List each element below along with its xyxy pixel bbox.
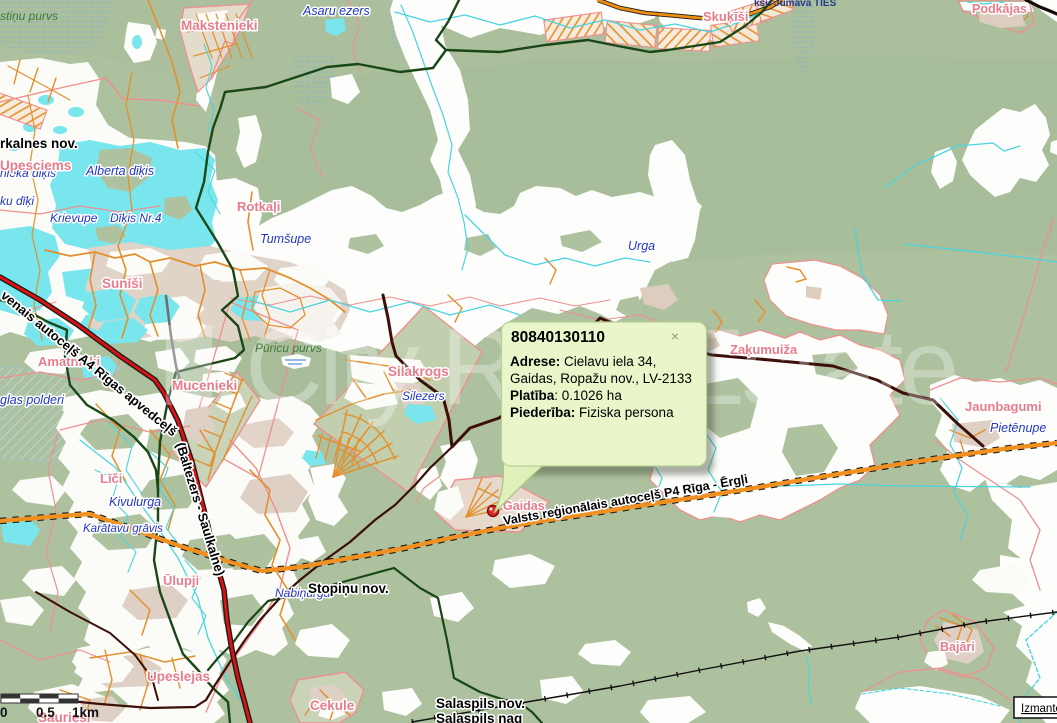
svg-text:kšu Jumava TIES: kšu Jumava TIES [754, 0, 837, 9]
svg-text:Izmantoš: Izmantoš [1021, 703, 1057, 715]
svg-text:Salaspils nov.: Salaspils nov. [436, 696, 525, 711]
svg-text:Rotkaļi: Rotkaļi [237, 199, 280, 214]
svg-text:Piederība: Fiziska persona: Piederība: Fiziska persona [510, 405, 674, 420]
svg-text:Gaidas, Ropažu nov., LV-2133: Gaidas, Ropažu nov., LV-2133 [510, 371, 692, 386]
svg-text:Alberta dīķis: Alberta dīķis [85, 164, 154, 178]
svg-text:Mucenieki: Mucenieki [172, 378, 237, 393]
svg-text:Upeslejas: Upeslejas [147, 669, 210, 684]
svg-text:Silezers: Silezers [402, 389, 445, 403]
svg-text:Sunīši: Sunīši [102, 276, 143, 291]
svg-text:80840130110: 80840130110 [511, 329, 605, 346]
svg-text:Asaru ezers: Asaru ezers [302, 4, 370, 18]
svg-text:Platība: 0.1026 ha: Platība: 0.1026 ha [510, 388, 622, 403]
svg-text:rkalnes nov.: rkalnes nov. [0, 136, 78, 151]
svg-text:Makstenieki: Makstenieki [181, 18, 258, 33]
svg-text:Pūricu purvs: Pūricu purvs [255, 341, 322, 355]
svg-text:0.5: 0.5 [36, 705, 55, 720]
svg-text:1km: 1km [72, 705, 99, 720]
svg-text:Podkājas: Podkājas [972, 2, 1027, 16]
svg-text:Karātavu grāvis: Karātavu grāvis [83, 523, 163, 535]
svg-text:Urga: Urga [628, 239, 655, 253]
svg-text:Tumšupe: Tumšupe [260, 232, 311, 246]
svg-text:Skuķīši: Skuķīši [703, 9, 749, 24]
svg-text:Ūlupji: Ūlupji [163, 573, 199, 588]
svg-text:Silakrogs: Silakrogs [388, 364, 449, 379]
svg-text:Dīķis Nr.4: Dīķis Nr.4 [110, 211, 162, 225]
svg-text:Upesciems: Upesciems [0, 158, 71, 173]
svg-text:0: 0 [0, 705, 8, 720]
svg-text:ku dīķi: ku dīķi [0, 194, 34, 208]
svg-text:Jaunbagumi: Jaunbagumi [965, 399, 1042, 414]
svg-text:Zaķumuiža: Zaķumuiža [730, 342, 798, 357]
svg-text:Pietēnupe: Pietēnupe [990, 421, 1046, 435]
svg-text:stiņu purvs: stiņu purvs [0, 9, 58, 23]
svg-text:Kivulurga: Kivulurga [109, 495, 161, 509]
svg-text:Adrese: Cielavu iela 34,: Adrese: Cielavu iela 34, [510, 354, 656, 369]
svg-text:Krievupe: Krievupe [50, 211, 98, 225]
svg-text:Cekule: Cekule [310, 698, 355, 713]
svg-text:×: × [671, 328, 679, 344]
svg-text:Līči: Līči [100, 471, 122, 486]
svg-text:Bajāri: Bajāri [940, 640, 975, 654]
svg-text:Stopiņu nov.: Stopiņu nov. [308, 581, 389, 596]
svg-text:Salaspils nag: Salaspils nag [436, 711, 522, 723]
svg-text:glas polderi: glas polderi [0, 393, 65, 407]
